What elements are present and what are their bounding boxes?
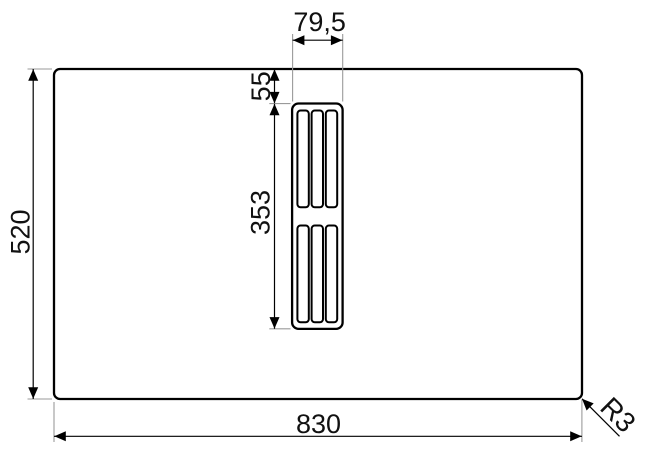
svg-text:79,5: 79,5 (293, 7, 346, 37)
svg-text:353: 353 (246, 190, 276, 235)
svg-text:55: 55 (246, 71, 276, 101)
svg-text:520: 520 (6, 209, 36, 254)
svg-text:830: 830 (296, 409, 341, 439)
